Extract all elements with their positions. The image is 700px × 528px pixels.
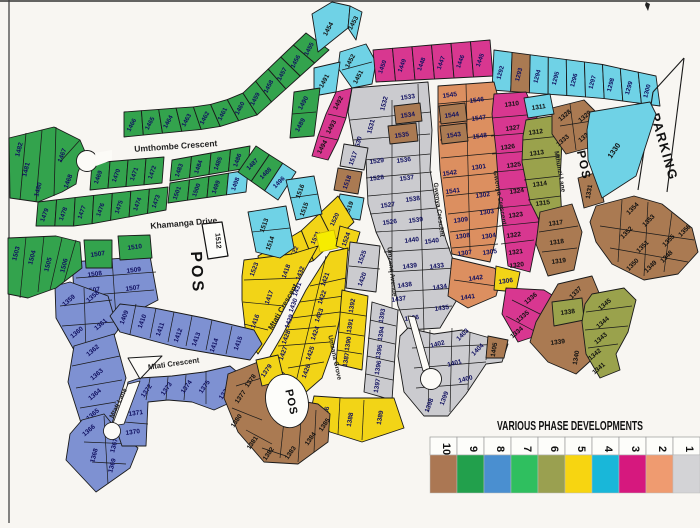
svg-text:1512: 1512 [213,233,221,249]
svg-text:10: 10 [440,443,452,455]
svg-text:3: 3 [629,446,641,452]
svg-text:9: 9 [467,446,479,452]
svg-text:8: 8 [494,446,506,452]
svg-text:4: 4 [602,446,614,453]
svg-text:1305: 1305 [482,248,498,257]
svg-text:5: 5 [575,446,587,452]
svg-text:1: 1 [683,446,695,452]
svg-text:VARIOUS PHASE DEVELOPMENTS: VARIOUS PHASE DEVELOPMENTS [497,419,643,433]
svg-text:POS: POS [187,251,206,295]
svg-text:6: 6 [548,446,560,452]
svg-text:2: 2 [656,446,668,452]
svg-text:7: 7 [521,446,533,452]
svg-text:Umthombe Crescent: Umthombe Crescent [134,138,218,154]
